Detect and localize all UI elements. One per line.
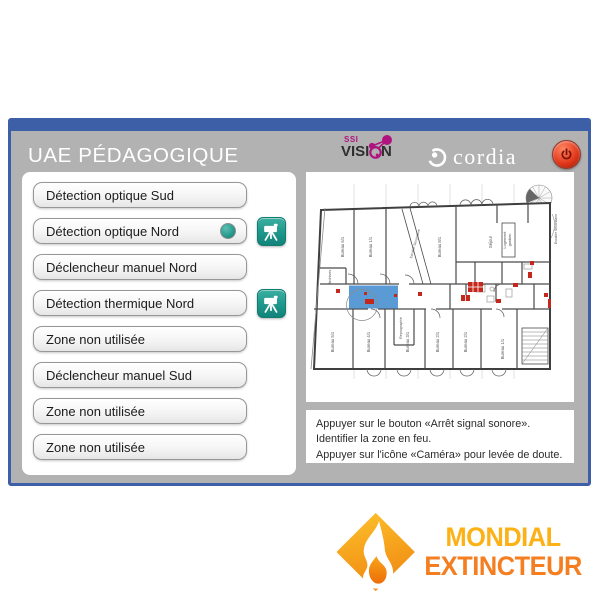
svg-text:Bureau 8/1: Bureau 8/1 xyxy=(437,236,442,257)
zone-row: Détection optique Sud xyxy=(33,182,286,208)
svg-text:Séjour: Séjour xyxy=(488,235,493,248)
flame-diamond-icon xyxy=(334,510,417,594)
zone-button-declencheur-manuel-nord[interactable]: Déclencheur manuel Nord xyxy=(33,254,247,280)
zone-list-panel: Détection optique Sud Détection optique … xyxy=(22,172,296,475)
app-window: UAE PÉDAGOGIQUE SSI VISION cordia xyxy=(8,118,591,486)
camera-button[interactable] xyxy=(257,217,286,246)
alarm-indicator xyxy=(220,223,236,239)
zone-label: Zone non utilisée xyxy=(46,404,145,419)
zone-row: Zone non utilisée xyxy=(33,434,286,460)
svg-text:Bureau 1/1: Bureau 1/1 xyxy=(500,338,505,359)
cordia-logo: cordia xyxy=(426,144,517,170)
camera-button[interactable] xyxy=(257,289,286,318)
zone-button-declencheur-manuel-sud[interactable]: Déclencheur manuel Sud xyxy=(33,362,247,388)
svg-text:Escalier Secondaire: Escalier Secondaire xyxy=(554,214,558,244)
cordia-logo-text: cordia xyxy=(453,144,517,170)
cordia-swirl-icon xyxy=(426,146,448,168)
svg-text:Bureau 1/1: Bureau 1/1 xyxy=(368,236,373,257)
brand-line-2: EXTINCTEUR xyxy=(421,552,585,581)
zone-label: Zone non utilisée xyxy=(46,440,145,455)
floorplan-panel: Bureau 6/1 Bureau 1/1 Bureau 8/1 Séjour … xyxy=(306,172,574,402)
zone-label: Détection optique Sud xyxy=(46,188,174,203)
zone-label: Détection optique Nord xyxy=(46,224,179,239)
zone-label: Déclencheur manuel Nord xyxy=(46,260,197,275)
zone-label: Détection thermique Nord xyxy=(46,296,194,311)
instruction-line-2: Identifier la zone en feu. xyxy=(316,432,564,447)
camera-icon xyxy=(261,293,282,314)
zone-row: Déclencheur manuel Nord xyxy=(33,254,286,280)
power-button[interactable] xyxy=(552,140,581,169)
camera-icon xyxy=(261,221,282,242)
svg-text:Logement: Logement xyxy=(503,231,507,249)
zone-row: Déclencheur manuel Sud xyxy=(33,362,286,388)
svg-text:Bureau 3/1: Bureau 3/1 xyxy=(405,331,410,352)
zone-row: Zone non utilisée xyxy=(33,326,286,352)
svg-text:Archives: Archives xyxy=(328,270,332,285)
zone-row: Zone non utilisée xyxy=(33,398,286,424)
instruction-line-1: Appuyer sur le bouton «Arrêt signal sono… xyxy=(316,417,564,432)
zone-row: Détection thermique Nord xyxy=(33,290,286,316)
mondial-extincteur-logo: MONDIAL EXTINCTEUR xyxy=(334,506,596,598)
zone-button-zone-non-utilisee-2[interactable]: Zone non utilisée xyxy=(33,398,247,424)
svg-text:Bureau 5/1: Bureau 5/1 xyxy=(330,331,335,352)
zone-label: Zone non utilisée xyxy=(46,332,145,347)
zone-button-zone-non-utilisee-3[interactable]: Zone non utilisée xyxy=(33,434,247,460)
svg-text:Bureau 6/1: Bureau 6/1 xyxy=(340,236,345,257)
svg-text:Bureau 2/1: Bureau 2/1 xyxy=(463,331,468,352)
power-icon xyxy=(559,147,574,162)
zone-button-detection-thermique-nord[interactable]: Détection thermique Nord xyxy=(33,290,247,316)
zone-button-detection-optique-sud[interactable]: Détection optique Sud xyxy=(33,182,247,208)
svg-text:gardien: gardien xyxy=(508,234,512,247)
active-zone-highlight xyxy=(349,286,398,309)
svg-text:Bureau 4/1: Bureau 4/1 xyxy=(366,331,371,352)
floorplan-drawing: Bureau 6/1 Bureau 1/1 Bureau 8/1 Séjour … xyxy=(306,172,574,402)
page-title: UAE PÉDAGOGIQUE xyxy=(28,144,239,168)
instructions-panel: Appuyer sur le bouton «Arrêt signal sono… xyxy=(306,410,574,463)
zone-label: Déclencheur manuel Sud xyxy=(46,368,192,383)
staircase xyxy=(522,328,548,364)
ssi-molecule-icon xyxy=(341,135,399,169)
brand-line-1: MONDIAL xyxy=(421,523,585,552)
zone-button-zone-non-utilisee-1[interactable]: Zone non utilisée xyxy=(33,326,247,352)
instruction-line-3: Appuyer sur l'icône «Caméra» pour levée … xyxy=(316,448,564,463)
ssi-vision-logo: SSI VISION xyxy=(341,135,399,169)
zone-row: Détection optique Nord xyxy=(33,218,286,244)
svg-text:Reprographie: Reprographie xyxy=(399,317,403,339)
svg-text:Bureau 2/1: Bureau 2/1 xyxy=(435,331,440,352)
zone-button-detection-optique-nord[interactable]: Détection optique Nord xyxy=(33,218,247,244)
brand-text: MONDIAL EXTINCTEUR xyxy=(421,523,585,581)
